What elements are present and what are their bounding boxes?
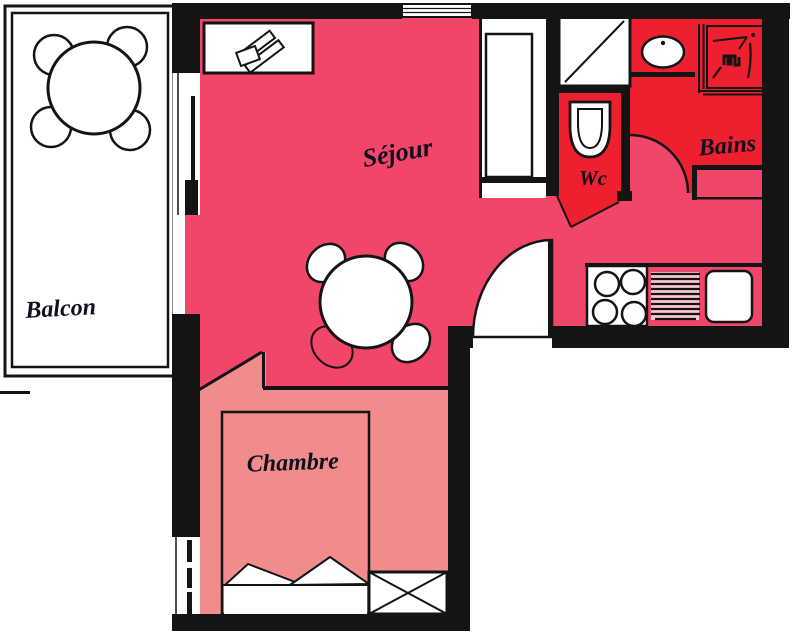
- svg-text:Bains: Bains: [697, 131, 757, 162]
- svg-text:Wc: Wc: [579, 166, 608, 190]
- svg-text:Balcon: Balcon: [24, 294, 97, 324]
- svg-text:Chambre: Chambre: [246, 448, 339, 477]
